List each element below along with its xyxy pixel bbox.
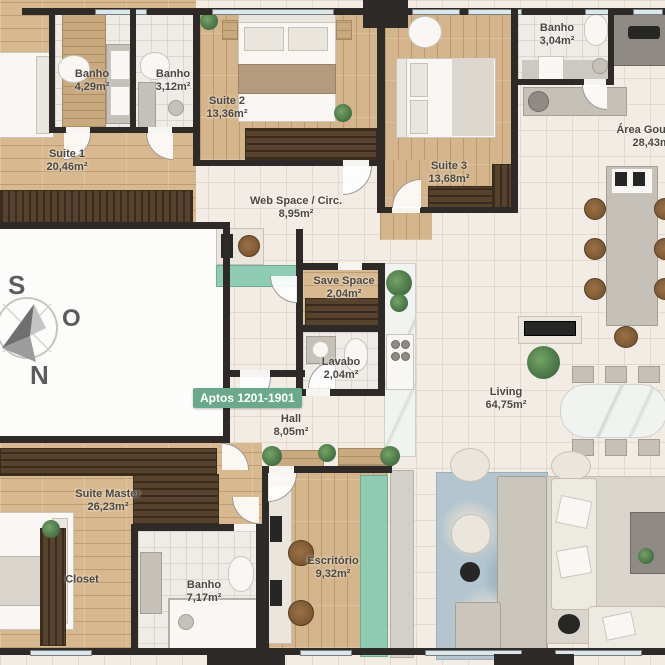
bed-pillow <box>410 100 428 134</box>
knob-icon <box>391 352 400 361</box>
stool <box>614 326 638 348</box>
room-label-hall: Hall8,05m² <box>274 413 309 439</box>
door-opening <box>268 466 294 473</box>
wall <box>223 222 230 443</box>
room-label-lavabo: Lavabo2,04m² <box>322 356 361 382</box>
dining-chair <box>638 439 660 456</box>
armchair <box>551 451 591 481</box>
plant-icon <box>527 346 560 379</box>
sink-icon <box>110 50 130 80</box>
dining-chair <box>572 366 594 383</box>
wall <box>131 524 138 650</box>
room-label-living: Living64,75m² <box>486 386 527 412</box>
door-swing <box>270 276 297 303</box>
door-opening <box>338 263 362 270</box>
wall <box>494 654 574 665</box>
room-label-closet: Closet <box>65 574 99 587</box>
wardrobe-save-space <box>305 298 381 328</box>
toilet-icon <box>228 556 254 592</box>
bed-blanket <box>452 58 494 136</box>
dining-table <box>560 384 665 438</box>
room-label-suite-1: Suite 120,46m² <box>47 148 88 174</box>
wall <box>378 263 385 396</box>
wardrobe-suite-1 <box>0 190 193 224</box>
vanity <box>138 82 156 128</box>
entry-door-opening <box>240 370 270 377</box>
room-label-banho-master: Banho7,17m² <box>187 579 222 605</box>
toilet-icon <box>584 14 608 46</box>
door-opening <box>234 524 258 531</box>
vertical-garden <box>360 475 388 657</box>
wall <box>608 8 614 80</box>
coffee-table <box>630 512 665 574</box>
closet-shelves <box>40 528 66 646</box>
knob-icon <box>401 352 410 361</box>
plant-icon <box>386 270 412 296</box>
grill-icon <box>628 26 660 39</box>
stool <box>584 278 606 300</box>
knob-icon <box>391 340 400 349</box>
burner-icon <box>615 172 627 186</box>
shower-icon <box>178 614 194 630</box>
floor-plan: S O N Banho4,29m² Banho3,12m² Suite 120,… <box>0 0 665 665</box>
room-label-banho-suite3: Banho3,04m² <box>540 22 575 48</box>
wall <box>49 8 55 133</box>
plant-icon <box>638 548 654 564</box>
tv-icon <box>524 321 576 336</box>
compass-west-label: O <box>62 305 81 332</box>
desk-chair <box>288 600 314 626</box>
room-label-escritorio: Escritório9,32m² <box>307 555 358 581</box>
window <box>212 9 334 15</box>
escritorio-desk <box>266 486 292 644</box>
room-label-suite-3: Suite 313,68m² <box>429 160 470 186</box>
unit-badge: Aptos 1201-1901 <box>193 388 302 408</box>
wall <box>296 263 303 396</box>
sofa-gray-corner <box>455 602 501 650</box>
monitor-icon <box>270 516 282 542</box>
wardrobe-suite-master <box>133 474 219 526</box>
plant-icon <box>42 520 60 538</box>
desk-chair <box>238 235 260 257</box>
vanity <box>140 552 162 614</box>
room-label-web-space: Web Space / Circ.8,95m² <box>250 195 342 221</box>
compass-north-label: N <box>30 360 49 390</box>
wall <box>256 524 263 650</box>
bed-blanket <box>238 64 336 94</box>
sink-icon <box>110 86 130 116</box>
bed-pillow <box>288 27 328 51</box>
wardrobe-suite-master-top <box>0 448 217 476</box>
bed-pillow <box>410 63 428 97</box>
room-label-area-gourmet: Área Gourmet28,43m² <box>616 124 665 150</box>
bed-pillow <box>244 27 284 51</box>
side-table <box>451 514 491 554</box>
wall <box>0 436 230 443</box>
room-label-banho-suite1: Banho4,29m² <box>75 68 110 94</box>
dining-chair <box>638 366 660 383</box>
window <box>95 9 147 15</box>
nightstand <box>336 20 352 40</box>
plant-icon <box>334 104 352 122</box>
wardrobe-suite-2 <box>245 128 377 160</box>
wall <box>130 8 136 128</box>
armchair <box>408 16 442 48</box>
wall <box>511 8 518 213</box>
sofa-cushion <box>556 545 592 578</box>
compass-rose: S O N <box>0 266 95 391</box>
plant-icon <box>380 446 400 466</box>
curtain-wall <box>390 470 414 658</box>
shower-icon <box>592 58 608 74</box>
plant-icon <box>390 294 408 312</box>
burner-icon <box>633 172 645 186</box>
plant-icon <box>262 446 282 466</box>
wall <box>303 325 385 332</box>
sofa-gray-chaise <box>497 476 547 650</box>
shaft <box>363 0 408 28</box>
gourmet-grill-counter <box>612 12 665 66</box>
monitor-icon <box>270 580 282 606</box>
compass-south-label: S <box>8 270 25 300</box>
room-label-save-space: Save Space2,04m² <box>313 275 374 301</box>
wall <box>377 8 385 213</box>
pouf <box>460 562 480 582</box>
room-label-suite-2: Suite 213,36m² <box>207 95 248 121</box>
wall <box>193 8 200 166</box>
dining-chair <box>605 439 627 456</box>
wall <box>296 229 303 263</box>
room-label-suite-master: Suite Master26,23m² <box>75 488 140 514</box>
window <box>30 650 92 656</box>
armchair <box>450 448 490 482</box>
window <box>300 650 352 656</box>
plant-icon <box>318 444 336 462</box>
stool <box>584 238 606 260</box>
stool <box>584 198 606 220</box>
door-swing <box>343 166 372 195</box>
nightstand <box>222 20 238 40</box>
window <box>633 9 663 15</box>
wall <box>207 654 285 665</box>
knob-icon <box>401 340 410 349</box>
dining-chair <box>605 366 627 383</box>
gourmet-sink-icon <box>528 91 549 112</box>
pouf <box>558 614 580 634</box>
shower-icon <box>168 100 184 116</box>
room-label-banho-suite2: Banho3,12m² <box>156 68 191 94</box>
wall <box>0 222 230 229</box>
window <box>412 9 460 15</box>
door-opening <box>306 389 330 396</box>
bed-pillow <box>36 56 50 134</box>
